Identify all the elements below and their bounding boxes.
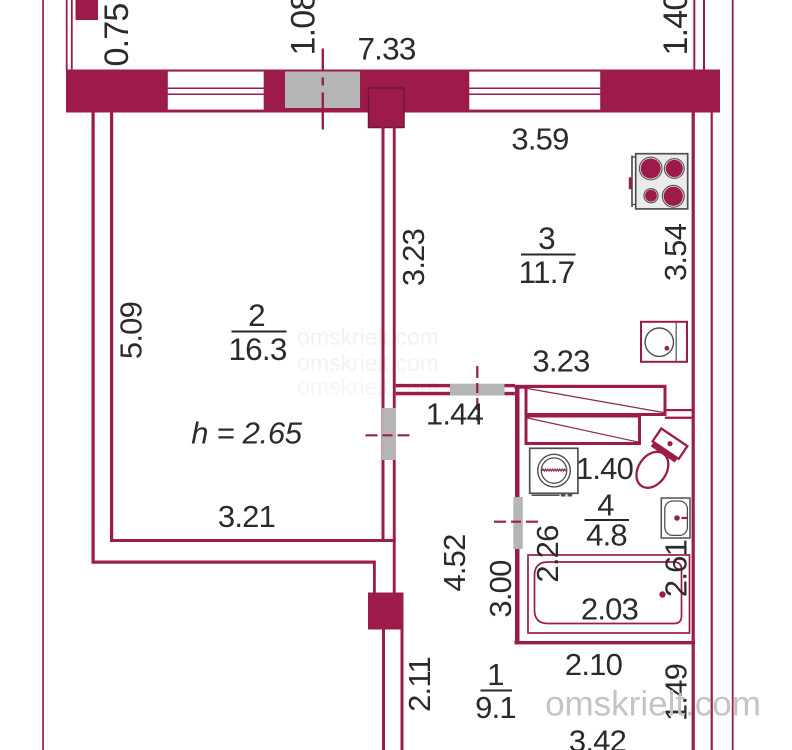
svg-text:2.26: 2.26 (530, 525, 565, 582)
svg-text:4.8: 4.8 (586, 518, 627, 553)
svg-text:9.1: 9.1 (475, 690, 516, 725)
svg-text:3.00: 3.00 (483, 560, 518, 618)
svg-text:2: 2 (248, 297, 265, 333)
svg-text:3.21: 3.21 (218, 499, 275, 534)
svg-text:3.23: 3.23 (396, 229, 431, 286)
svg-text:3.59: 3.59 (511, 122, 568, 157)
svg-text:1.44: 1.44 (426, 396, 484, 431)
svg-text:1.40: 1.40 (657, 0, 695, 55)
svg-text:3.23: 3.23 (532, 343, 589, 378)
svg-text:3.54: 3.54 (658, 223, 693, 281)
svg-text:1: 1 (487, 657, 503, 692)
svg-text:2.03: 2.03 (581, 592, 638, 627)
svg-text:0.75: 0.75 (98, 4, 136, 67)
svg-text:omskrielt.com: omskrielt.com (545, 685, 761, 724)
svg-text:omskrielt.com: omskrielt.com (297, 324, 439, 350)
svg-text:3.42: 3.42 (569, 724, 626, 750)
svg-text:1.08: 1.08 (285, 0, 323, 55)
svg-text:11.7: 11.7 (519, 254, 575, 290)
svg-text:3: 3 (538, 220, 555, 256)
svg-text:7.33: 7.33 (357, 31, 415, 67)
svg-text:omskrielt.com: omskrielt.com (297, 350, 439, 376)
svg-text:2.10: 2.10 (565, 647, 623, 682)
svg-text:4.52: 4.52 (437, 534, 472, 591)
svg-text:h = 2.65: h = 2.65 (191, 416, 303, 451)
svg-text:2.61: 2.61 (659, 540, 694, 597)
svg-text:1.40: 1.40 (576, 451, 634, 486)
svg-text:16.3: 16.3 (228, 331, 286, 367)
svg-text:2.11: 2.11 (402, 657, 437, 712)
svg-text:5.09: 5.09 (114, 302, 149, 359)
